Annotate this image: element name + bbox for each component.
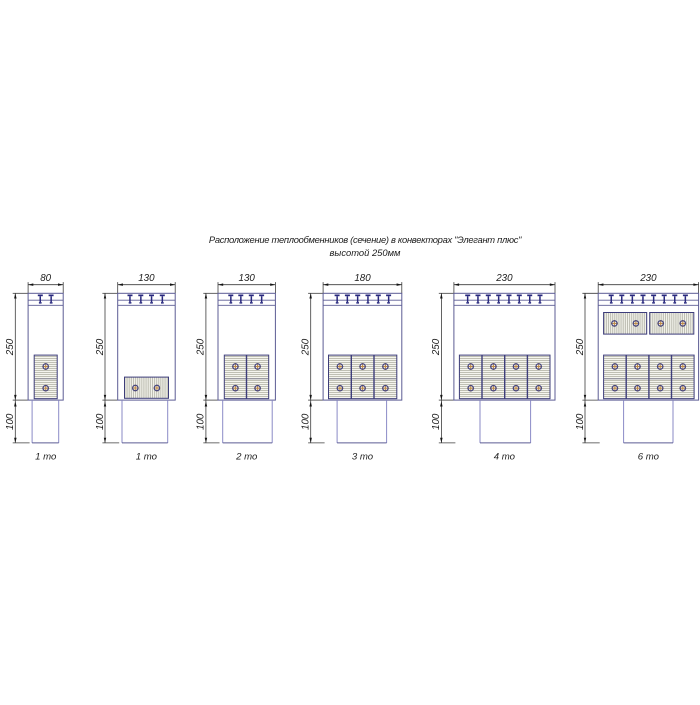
svg-text:230: 230 bbox=[639, 273, 657, 284]
svg-text:100: 100 bbox=[95, 413, 106, 430]
svg-text:250: 250 bbox=[431, 338, 442, 356]
svg-text:2 то: 2 то bbox=[235, 451, 258, 462]
svg-text:250: 250 bbox=[95, 338, 106, 356]
svg-text:3 то: 3 то bbox=[352, 451, 374, 462]
svg-text:100: 100 bbox=[301, 413, 312, 430]
svg-text:250: 250 bbox=[301, 338, 312, 356]
svg-text:4 то: 4 то bbox=[494, 451, 516, 462]
svg-text:6 то: 6 то bbox=[638, 451, 660, 462]
svg-text:130: 130 bbox=[239, 273, 256, 284]
svg-text:180: 180 bbox=[354, 273, 371, 284]
svg-text:80: 80 bbox=[40, 273, 51, 284]
svg-text:250: 250 bbox=[196, 338, 207, 356]
svg-text:100: 100 bbox=[196, 413, 207, 430]
svg-text:100: 100 bbox=[5, 413, 16, 430]
svg-text:100: 100 bbox=[575, 413, 586, 430]
svg-text:100: 100 bbox=[431, 413, 442, 430]
svg-text:250: 250 bbox=[5, 338, 16, 356]
svg-text:Расположение теплообменников (: Расположение теплообменников (сечение) в… bbox=[209, 234, 522, 245]
svg-text:250: 250 bbox=[575, 338, 586, 356]
svg-text:230: 230 bbox=[495, 273, 513, 284]
svg-text:130: 130 bbox=[138, 273, 155, 284]
svg-text:1 то: 1 то bbox=[136, 451, 158, 462]
svg-text:1 то: 1 то bbox=[35, 451, 57, 462]
svg-text:высотой 250мм: высотой 250мм bbox=[330, 247, 401, 258]
